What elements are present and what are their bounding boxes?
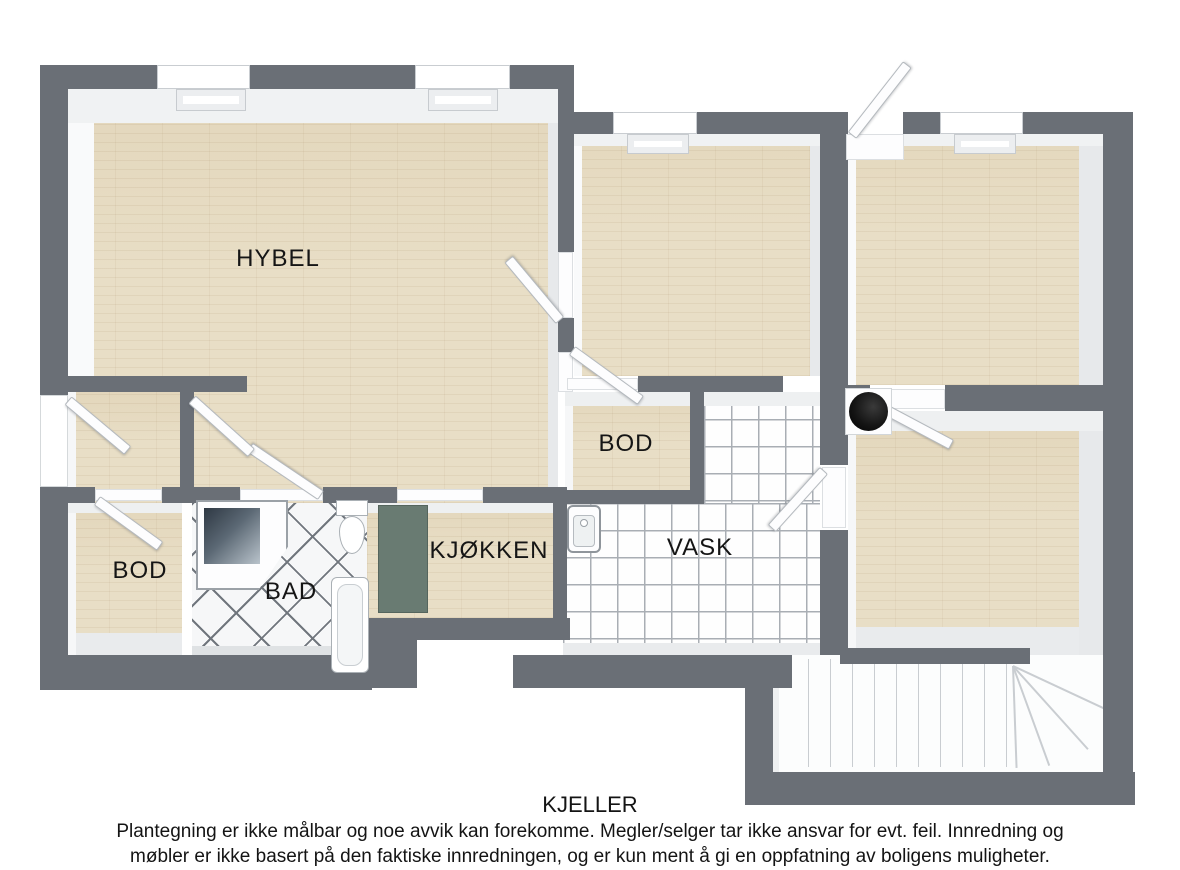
room-label-vask: VASK [667, 534, 733, 562]
window-gap [613, 112, 697, 134]
window-gap [940, 112, 1023, 134]
window-sill [627, 134, 689, 154]
laundry-sink [567, 505, 601, 553]
wall-lower-row-d [483, 487, 567, 503]
room-label-bod-left: BOD [112, 557, 167, 585]
wall-vask-bottom [513, 655, 792, 688]
room-label-kjokken: KJØKKEN [429, 537, 548, 565]
disclaimer-line-1: Plantegning er ikke målbar og noe avvik … [0, 821, 1180, 843]
room-floor-right-bottom [848, 411, 1103, 655]
left-wall-opening [40, 395, 68, 487]
room-label-bod-middle: BOD [598, 430, 653, 458]
wall-hybel-right-upper [558, 85, 574, 252]
wall-bod-mid-right [690, 392, 704, 490]
wall-lower-row-a [40, 487, 95, 503]
floor-plan-kjeller: HYBEL BOD BOD BAD KJØKKEN VASK KJELLER P… [0, 0, 1180, 870]
window-gap [415, 65, 510, 89]
disclaimer-line-2: møbler er ikke basert på den faktiske in… [0, 846, 1180, 868]
wall-outer-bottom-left [40, 655, 372, 690]
bathtub-inner [337, 584, 363, 666]
wall-corridor-top [42, 376, 247, 392]
toilet-tank [336, 500, 368, 516]
wall-stair-top [840, 648, 1030, 664]
wall-hybel-right-lower [558, 318, 574, 352]
room-label-hybel: HYBEL [236, 245, 320, 273]
water-heater [849, 392, 888, 431]
staircase [773, 655, 1103, 772]
wall-rightbottom-top-b [945, 385, 1103, 411]
staircase-winder-step [1012, 665, 1088, 750]
toilet-bowl [339, 516, 365, 554]
wall-outer-top-b [250, 65, 415, 89]
wall-outer-left-upper [40, 65, 68, 395]
floor-title: KJELLER [0, 792, 1180, 818]
wall-midroom-top-b [697, 112, 820, 134]
window-sill [428, 89, 498, 111]
passage-midroom-vask [783, 376, 820, 392]
room-label-bad: BAD [265, 578, 317, 606]
kitchen-counter [378, 505, 428, 613]
wall-outer-right [1103, 112, 1133, 805]
staircase-steps [787, 659, 1011, 767]
room-floor-middle-top [574, 112, 820, 376]
bathtub [331, 577, 369, 673]
sink-drain [580, 519, 588, 527]
wall-kjokken-bottom [355, 618, 570, 640]
door-threshold [558, 252, 573, 318]
wall-rightroom-top-a [903, 112, 940, 134]
window-sill [954, 134, 1016, 154]
wall-bod-mid-top [638, 376, 783, 392]
window-sill [176, 89, 246, 111]
wall-midroom-top-a [558, 112, 613, 134]
wall-kjokken-vask-divider [553, 503, 567, 618]
wall-bod-mid-bottom [565, 490, 704, 504]
wall-vask-right-upper [820, 385, 848, 465]
window-gap [157, 65, 250, 89]
shower-glass [204, 508, 260, 564]
wall-mid-right-divider [820, 112, 848, 385]
wall-vask-right-lower [820, 530, 848, 655]
door-threshold [397, 489, 483, 501]
toilet [336, 500, 368, 556]
